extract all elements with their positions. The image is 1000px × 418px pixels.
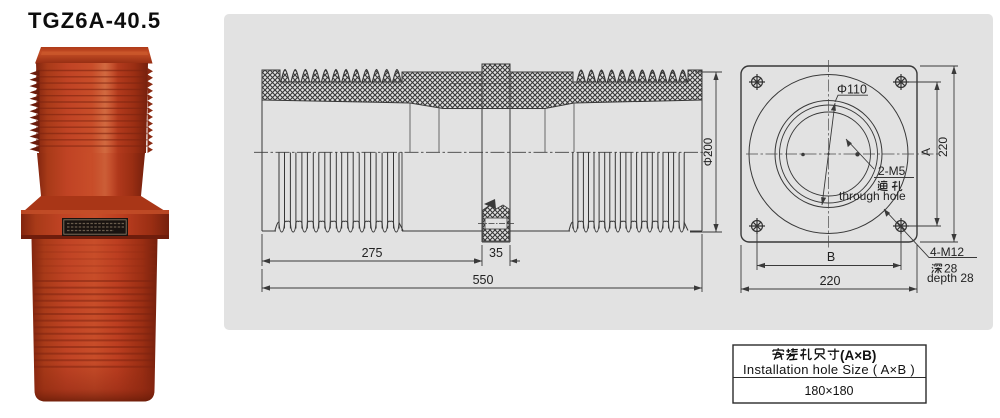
- svg-text:Installation hole Size ( A×B ): Installation hole Size ( A×B ): [743, 362, 915, 377]
- svg-text:220: 220: [936, 137, 950, 157]
- svg-text:through hole: through hole: [839, 189, 906, 203]
- svg-text:(A×B): (A×B): [840, 348, 876, 363]
- svg-text:275: 275: [362, 246, 383, 260]
- svg-text:2-M5: 2-M5: [878, 164, 906, 178]
- svg-text:550: 550: [473, 273, 494, 287]
- svg-text:depth 28: depth 28: [927, 271, 974, 285]
- svg-text:A: A: [919, 148, 933, 156]
- svg-text:180×180: 180×180: [804, 384, 853, 398]
- svg-text:B: B: [827, 250, 835, 264]
- svg-text:35: 35: [489, 246, 503, 260]
- svg-text:4-M12: 4-M12: [930, 245, 964, 259]
- svg-text:Φ200: Φ200: [703, 138, 715, 166]
- svg-text:220: 220: [820, 274, 841, 288]
- svg-text:Φ110: Φ110: [837, 83, 867, 97]
